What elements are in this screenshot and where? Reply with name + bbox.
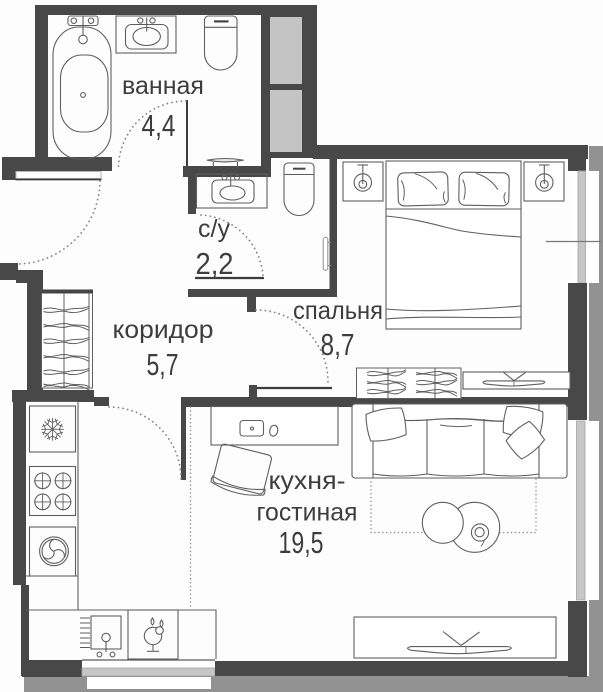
svg-text:2,2: 2,2 [196, 246, 234, 281]
svg-text:8,7: 8,7 [321, 327, 355, 362]
svg-text:с/у: с/у [198, 215, 230, 243]
svg-text:гостиная: гостиная [257, 499, 358, 527]
svg-text:ванная: ванная [122, 72, 204, 100]
svg-text:19,5: 19,5 [279, 525, 324, 560]
svg-text:5,7: 5,7 [147, 347, 179, 382]
svg-text:спальня: спальня [293, 297, 383, 325]
svg-text:4,4: 4,4 [142, 108, 176, 143]
svg-text:коридор: коридор [113, 316, 214, 344]
svg-text:кухня-: кухня- [269, 467, 346, 495]
